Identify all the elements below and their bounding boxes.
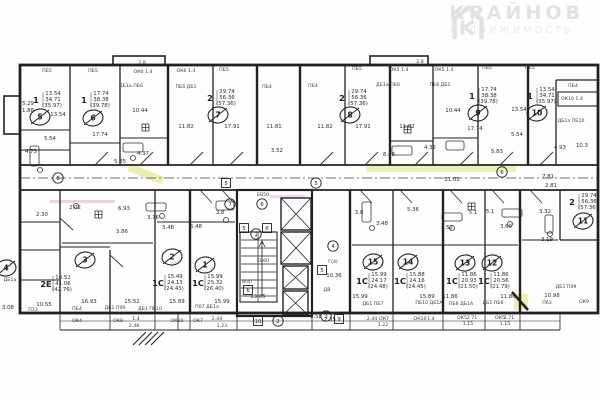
- wall-label: ЕВ60: [257, 258, 269, 264]
- apartment-area: (21.50): [458, 284, 478, 290]
- wall-label: ПБ5: [219, 67, 229, 73]
- wall-label: ОК6 1.4: [177, 68, 196, 74]
- axis-badge-label: 5: [242, 226, 245, 232]
- wall-label: ПБ4: [568, 83, 578, 89]
- dimension-label: 51.01: [444, 177, 459, 183]
- wall-label: ПБ6 ДБ1: [429, 82, 450, 88]
- apartment-type: 1С: [394, 276, 406, 286]
- wall-label: ОК7: [193, 318, 203, 324]
- apartment-mark: 141С15.8824.16(24.45): [394, 253, 426, 290]
- dimension-label: 10.44: [132, 108, 148, 114]
- scanned-floorplan-page: КРАЙНОВ НЕДВИЖИМОСТЬ: [0, 0, 600, 400]
- axis-badge-label: 4: [331, 244, 335, 250]
- dimension-label: 17.91: [224, 124, 239, 130]
- apartment-mark: 11229.7456.36(57.36): [569, 193, 598, 230]
- wall-label: ОК4: [72, 318, 82, 324]
- wall-label: ДБ1 ПБ7: [362, 301, 383, 307]
- wall-label: 2.71: [467, 315, 477, 321]
- dimension-label: 3.76: [147, 215, 160, 221]
- dimension-label: 15.52: [124, 299, 139, 305]
- wall-label: П07 ДБ1а: [195, 304, 219, 310]
- wall-label: 2.48: [129, 323, 139, 329]
- wall-label: ПБ4: [262, 84, 272, 90]
- dimension-label: 2.30: [36, 212, 49, 218]
- dimension-label: 3.19: [541, 237, 554, 243]
- dimension-label: 1.88: [22, 108, 35, 114]
- wall-label: ОК10 1.4: [561, 96, 583, 102]
- apartment-type: 1: [33, 95, 39, 105]
- apartment-area: (24.43): [164, 286, 184, 292]
- dimension-label: 13.54: [50, 112, 66, 118]
- apartment-area: (57.36): [348, 101, 368, 107]
- wall-label: ОК7: [379, 316, 389, 322]
- apartment-area: (57.36): [578, 205, 598, 211]
- dimension-label: 5.48: [190, 224, 203, 230]
- dimension-label: 3.52: [441, 225, 453, 231]
- apartment-number: 11: [578, 217, 589, 226]
- apartment-number: 1: [202, 261, 207, 270]
- apartment-area: (26.40): [204, 286, 224, 292]
- wall-label: ЕВ50: [257, 192, 269, 198]
- dimension-label: 11.86: [442, 294, 458, 300]
- wall-label: ДБ1а: [4, 277, 17, 283]
- dimension-label: 4.37: [137, 151, 149, 157]
- apartment-number: 14: [403, 258, 414, 267]
- dimension-label: 10.55: [36, 302, 51, 308]
- dimension-label: 11.86: [500, 294, 516, 300]
- dimension-label: 11.82: [317, 124, 332, 130]
- apartment-type: 1: [527, 91, 533, 101]
- dimension-label: 5.1: [469, 210, 478, 216]
- dimension-label: 4.32: [424, 145, 436, 151]
- apartment-type: 1С: [356, 276, 368, 286]
- wall-label: 1.22: [378, 322, 388, 328]
- dimension-label: 3.86: [116, 229, 129, 235]
- dimension-label: 5.1: [486, 209, 495, 215]
- apartment-mark: 7229.7456.36(57.36): [207, 89, 236, 124]
- dimension-label: 5.85: [114, 159, 126, 165]
- wall-label: ПБ5: [42, 68, 52, 74]
- wall-label: ПБ4: [308, 83, 318, 89]
- wall-label: ОК6 1.4: [134, 69, 153, 75]
- wall-label: ОК5: [457, 315, 467, 321]
- dimension-label: 3.32: [539, 209, 551, 215]
- apartment-type: 2: [207, 93, 213, 103]
- dimension-label: 10.3: [576, 143, 588, 149]
- apartment-mark: 8229.7456.36(57.36): [339, 89, 368, 124]
- axis-badge-label: 10: [255, 319, 262, 325]
- dimension-label: 10.98: [544, 293, 560, 299]
- wall-label: ПБ6 ДБ1А: [449, 301, 474, 307]
- axis-badge-label: 6: [500, 170, 503, 176]
- axis-badge-label: 1: [254, 232, 257, 238]
- axis-badge-label: 6: [260, 202, 263, 208]
- wall-label: П13: [28, 307, 38, 313]
- wall-label: 2.71: [504, 315, 514, 321]
- dimension-label: 8.68: [383, 152, 396, 158]
- apartment-type: 1С: [478, 276, 490, 286]
- axis-badge-label: 5: [224, 181, 227, 187]
- dimension-label: 11.82: [399, 124, 414, 130]
- dimension-label: 15.89: [169, 299, 185, 305]
- wall-label: 1.15: [463, 321, 473, 327]
- wall-label: Г(4): [328, 259, 338, 265]
- apartment-area: (39.78): [478, 99, 498, 105]
- axis-badge-label: 6: [265, 226, 268, 232]
- wall-label: 2.8: [416, 59, 423, 65]
- apartment-type: 1С: [446, 276, 458, 286]
- wall-label: ОК9: [579, 299, 589, 305]
- bathroom-fixtures: [30, 124, 553, 237]
- wall-label: ОК5 1.4: [435, 67, 454, 73]
- apartment-area: (35.97): [536, 99, 556, 105]
- dimension-label: 6.93: [118, 206, 130, 212]
- apartment-mark: 4: [0, 259, 17, 278]
- wall-label: 1.23: [217, 323, 227, 329]
- apartment-mark: 10113.5434.71(35.97): [526, 87, 556, 122]
- dimension-label: 3.48: [376, 221, 389, 227]
- dimension-label: 3.8: [216, 210, 225, 216]
- apartment-type: 2: [339, 93, 345, 103]
- apartment-number: 6: [90, 114, 95, 123]
- dimension-label: 3.48: [162, 225, 175, 231]
- apartment-area: (24.48): [368, 284, 388, 290]
- axis-badge-label: 8: [56, 176, 59, 182]
- wall-label: П63: [542, 300, 552, 306]
- wall-label: ДБ1 П09: [105, 305, 126, 311]
- floor-plan-scan: 13.5417.745.544.7310.445.854.3711.8217.9…: [0, 0, 600, 400]
- axis-badge-label: 7: [228, 202, 231, 208]
- wall-label: 2.8: [138, 60, 145, 66]
- apartment-number: 10: [532, 109, 543, 118]
- wall-label: ОК10: [171, 318, 184, 324]
- dimension-label: 4.73: [25, 149, 37, 155]
- dimension-label: 2.81: [545, 183, 557, 189]
- axis-badge-label: 5: [320, 268, 323, 274]
- wall-label: ОК5 1.4: [390, 67, 409, 73]
- apartment-mark: 9117.7438.38(39.78): [467, 87, 498, 122]
- apartment-area: (24.45): [406, 284, 426, 290]
- dimension-label: 3.8: [355, 210, 364, 216]
- axis-badge-label: 5: [314, 181, 317, 187]
- apartment-number: 7: [215, 111, 220, 120]
- apartment-type: 1: [81, 95, 87, 105]
- dimension-label: 3.08: [2, 305, 15, 311]
- wall-label: ОК8: [113, 318, 123, 324]
- wall-label: ДБ1 П09: [556, 284, 577, 290]
- axis-badge-label: 3: [324, 314, 327, 320]
- wall-label: ПБ5: [482, 65, 492, 71]
- wall-label: ДБ1 ПБ6: [482, 300, 503, 306]
- dimension-label: 2.02: [69, 205, 81, 211]
- apartment-number: 9: [475, 109, 480, 118]
- apartment-type: 1: [469, 91, 475, 101]
- apartment-number: 4: [3, 264, 8, 273]
- wall-label: В(4): [242, 279, 252, 285]
- apartment-type: 1С: [152, 278, 164, 288]
- wall-label: ДБ1а ПБ10: [558, 118, 585, 124]
- dimension-label: 15.89: [419, 294, 435, 300]
- dimension-label: 10.44: [445, 108, 461, 114]
- apartment-number: 5: [37, 113, 42, 122]
- dimension-label: 13.54: [511, 107, 527, 113]
- dimension-label: 17.91: [355, 124, 370, 130]
- dimension-label: 5.54: [44, 136, 57, 142]
- wall-label: ДВ: [324, 287, 331, 293]
- apartment-number: 2: [169, 253, 174, 262]
- apartment-mark: 151С15.9924.17(24.48): [356, 253, 388, 290]
- wall-label: ОК10: [414, 316, 427, 322]
- dimension-label: 5.83: [491, 149, 503, 155]
- axis-badge-label: 6: [246, 288, 249, 294]
- wall-label: ПБ5: [525, 65, 535, 71]
- dimension-label: 17.74: [467, 126, 483, 132]
- dimension-label: 11.81: [266, 124, 281, 130]
- apartment-area: (39.78): [90, 103, 110, 109]
- wall-label: 2.44: [212, 316, 222, 322]
- dimension-label: 15.99: [352, 294, 368, 300]
- wall-label: 2.44: [367, 316, 377, 322]
- apartment-number: 3: [82, 256, 87, 265]
- apartment-number: 12: [487, 259, 498, 268]
- dimension-label: 3.52: [271, 148, 283, 154]
- apartment-mark: 121С11.8620.56(21.79): [478, 254, 510, 290]
- wall-label: ПБ5: [352, 66, 362, 72]
- dimension-label: 5.36: [407, 207, 420, 213]
- apartment-type: 2: [569, 197, 575, 207]
- wall-label: ДБ1 ПБ10: [138, 306, 162, 312]
- wall-label: 1.15: [500, 321, 510, 327]
- apartment-area: (57.36): [216, 101, 236, 107]
- apartment-area: (35.97): [42, 103, 62, 109]
- wall-label: ДБ1а ПБ6: [119, 83, 143, 89]
- apartment-type: 2Е: [40, 279, 51, 289]
- wall-label: 1.4: [427, 316, 434, 322]
- wall-label: ПБ6 ДБ1: [175, 84, 196, 90]
- wall-label: ПБ4: [72, 306, 82, 312]
- dimension-label: 5.54: [511, 132, 524, 138]
- dimension-label: 3.60: [500, 224, 513, 230]
- apartment-area: (21.79): [490, 284, 510, 290]
- apartment-type: 1С: [192, 278, 204, 288]
- apartment-mark: 32Е13.5241.06(42.76): [40, 251, 96, 293]
- dimension-label: 16.93: [81, 299, 96, 305]
- apartment-area: (42.76): [52, 287, 72, 293]
- apartment-mark: 21С15.4924.13(24.43): [152, 248, 184, 292]
- apartment-mark: 11С15.9925.32(26.40): [192, 256, 224, 292]
- dimension-label: 17.74: [92, 132, 108, 138]
- wall-label: ДБ1а ПБ6: [376, 82, 400, 88]
- dimension-label: 11.82: [178, 124, 193, 130]
- wall-label: 1.4: [132, 316, 139, 322]
- apartment-number: 8: [347, 111, 352, 120]
- wall-label: ПБ5: [88, 68, 98, 74]
- wall-label: ПБ10 ДБ1А: [415, 300, 443, 306]
- highlighter-marks: [50, 164, 528, 310]
- apartment-mark: 131С11.8620.93(21.50): [446, 254, 478, 290]
- apartment-number: 13: [460, 259, 471, 268]
- apartment-number: 15: [368, 258, 379, 267]
- dimension-label: 4.93: [554, 145, 566, 151]
- axis-badge-label: 2: [276, 319, 279, 325]
- axis-badge-label: 9: [337, 317, 340, 323]
- dimension-label: 10.36: [326, 273, 342, 279]
- dimension-label: 7.81: [542, 174, 554, 180]
- apartment-mark: 6117.7438.38(39.78): [81, 91, 110, 127]
